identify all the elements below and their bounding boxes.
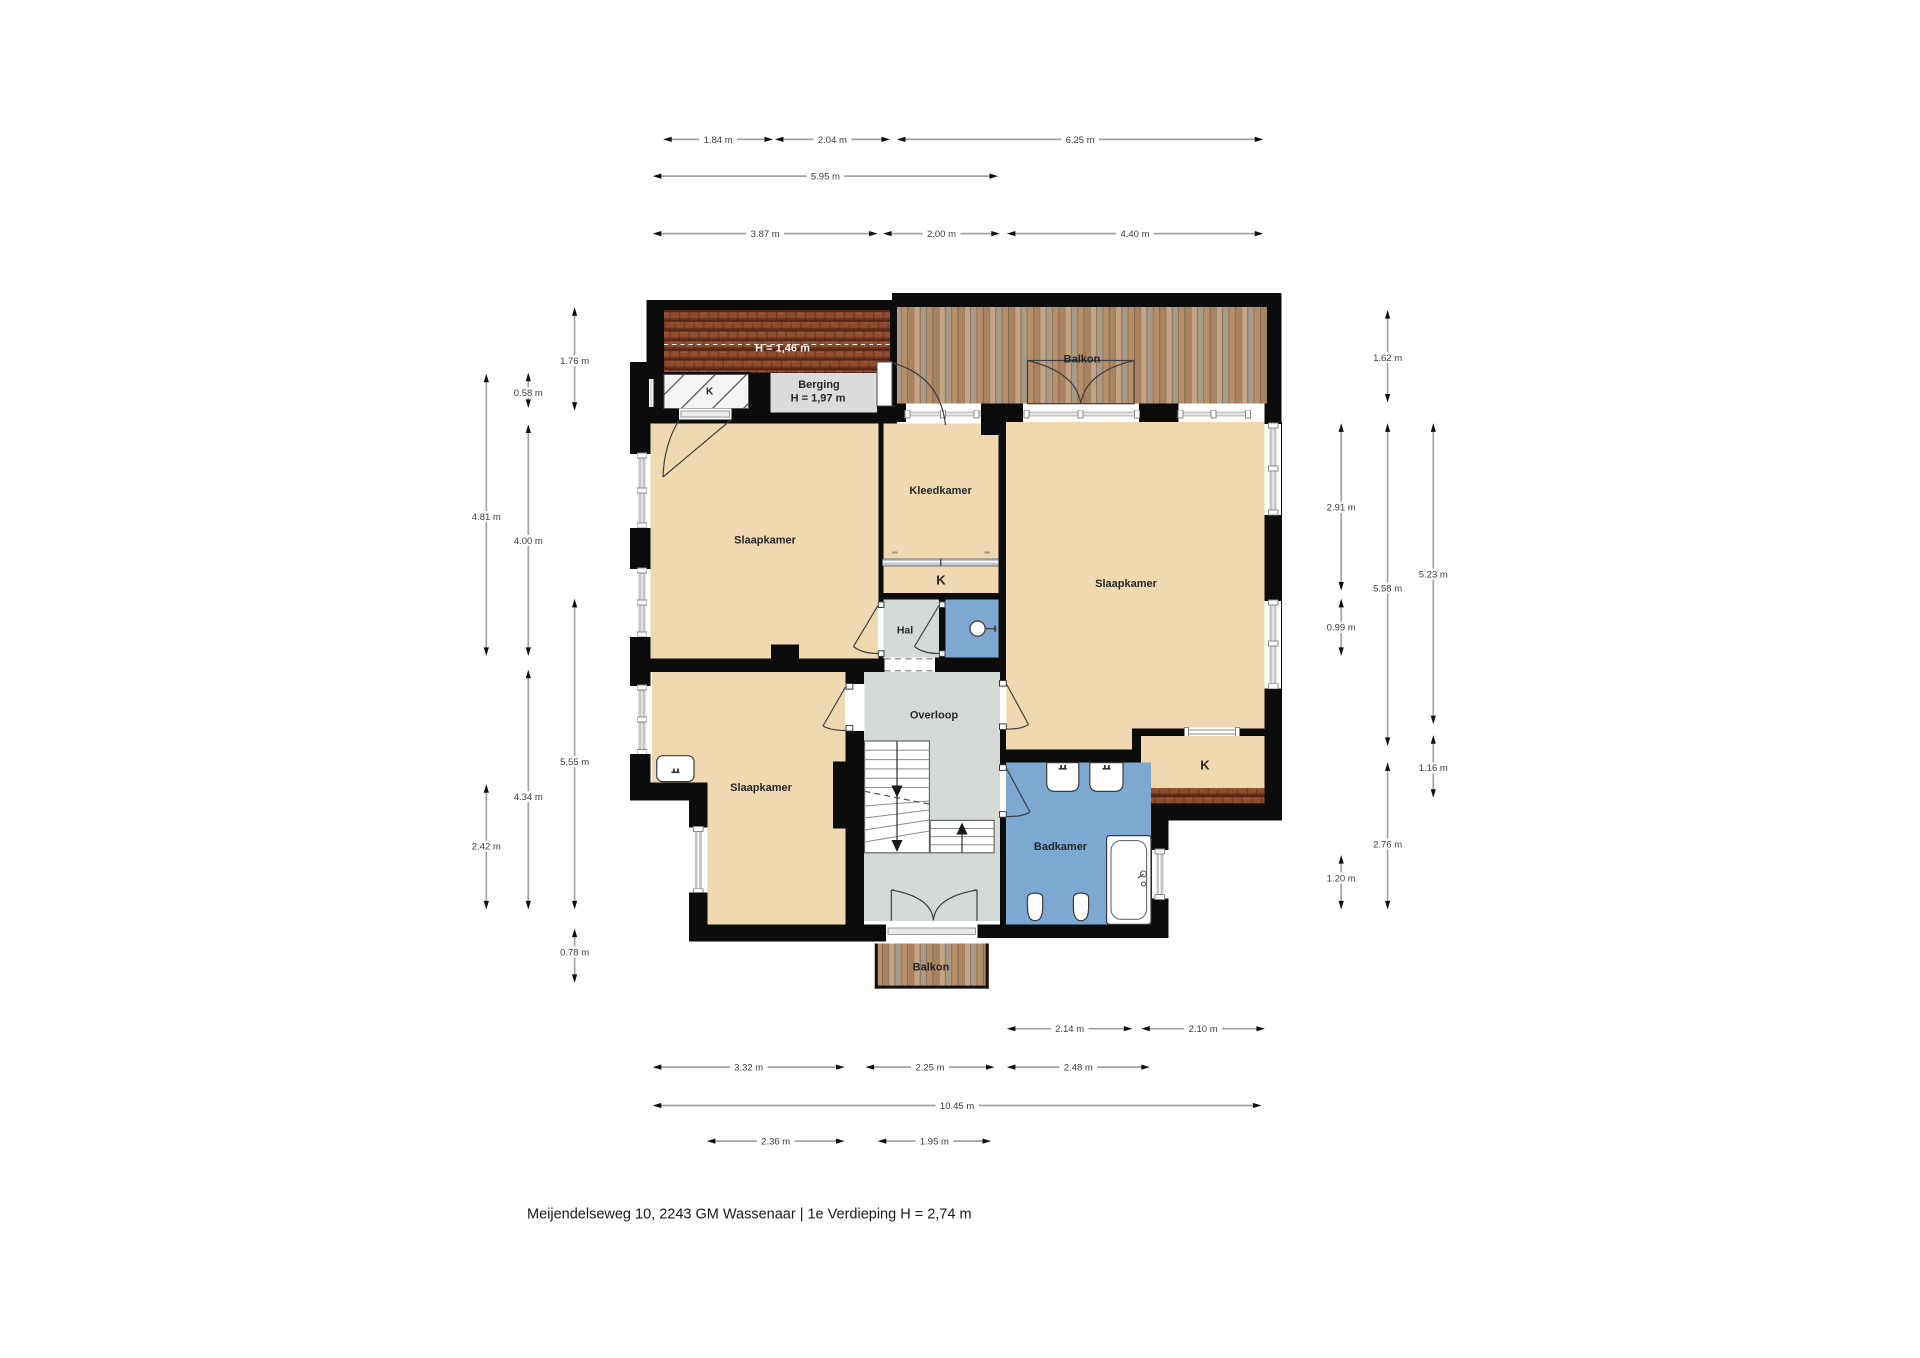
svg-text:K: K: [706, 387, 714, 398]
svg-text:Balkon: Balkon: [913, 962, 950, 974]
svg-text:H = 1,46 m: H = 1,46 m: [755, 343, 810, 355]
svg-text:2.14 m: 2.14 m: [1055, 1024, 1084, 1035]
svg-text:1.16 m: 1.16 m: [1419, 763, 1448, 774]
svg-text:4.34 m: 4.34 m: [514, 792, 543, 803]
svg-text:0.78 m: 0.78 m: [560, 947, 589, 958]
svg-text:H = 1,97 m: H = 1,97 m: [791, 393, 846, 405]
svg-text:Badkamer: Badkamer: [1034, 841, 1088, 853]
svg-text:2.36 m: 2.36 m: [761, 1137, 790, 1148]
svg-text:2.42 m: 2.42 m: [472, 841, 501, 852]
svg-text:0.58 m: 0.58 m: [514, 388, 543, 399]
svg-text:0.99 m: 0.99 m: [1327, 623, 1356, 634]
svg-text:4.81 m: 4.81 m: [472, 512, 501, 523]
svg-text:4.40 m: 4.40 m: [1120, 229, 1149, 240]
svg-text:2.00 m: 2.00 m: [927, 229, 956, 240]
svg-text:10.45 m: 10.45 m: [940, 1101, 974, 1112]
svg-text:Balkon: Balkon: [1064, 354, 1101, 366]
svg-text:2.04 m: 2.04 m: [818, 135, 847, 146]
svg-text:3.87 m: 3.87 m: [751, 229, 780, 240]
svg-text:Berging: Berging: [798, 379, 840, 391]
svg-text:4.00 m: 4.00 m: [514, 536, 543, 547]
svg-text:2.91 m: 2.91 m: [1327, 503, 1356, 514]
svg-text:Slaapkamer: Slaapkamer: [734, 535, 796, 547]
svg-text:2.10 m: 2.10 m: [1189, 1024, 1218, 1035]
svg-text:1.84 m: 1.84 m: [704, 135, 733, 146]
svg-text:2.76 m: 2.76 m: [1373, 839, 1402, 850]
svg-text:5.55 m: 5.55 m: [560, 757, 589, 768]
svg-text:Hal: Hal: [897, 625, 913, 637]
svg-text:1.76 m: 1.76 m: [560, 356, 589, 367]
svg-text:Slaapkamer: Slaapkamer: [730, 782, 792, 794]
svg-text:1.20 m: 1.20 m: [1327, 873, 1356, 884]
svg-text:Kleedkamer: Kleedkamer: [909, 485, 972, 497]
svg-text:6.25 m: 6.25 m: [1066, 135, 1095, 146]
svg-text:5.58 m: 5.58 m: [1373, 583, 1402, 594]
svg-text:K: K: [936, 573, 946, 588]
svg-text:5.23 m: 5.23 m: [1419, 570, 1448, 581]
svg-text:2.48 m: 2.48 m: [1064, 1063, 1093, 1074]
svg-text:Meijendelseweg 10, 2243 GM Was: Meijendelseweg 10, 2243 GM Wassenaar | 1…: [527, 1207, 972, 1223]
svg-text:1.62 m: 1.62 m: [1373, 353, 1402, 364]
svg-text:Slaapkamer: Slaapkamer: [1095, 578, 1157, 590]
svg-text:2.25 m: 2.25 m: [915, 1063, 944, 1074]
svg-text:3.32 m: 3.32 m: [734, 1063, 763, 1074]
svg-text:1.95 m: 1.95 m: [920, 1137, 949, 1148]
svg-text:K: K: [1200, 758, 1210, 773]
svg-text:5.95 m: 5.95 m: [811, 172, 840, 183]
svg-text:Overloop: Overloop: [910, 710, 959, 722]
